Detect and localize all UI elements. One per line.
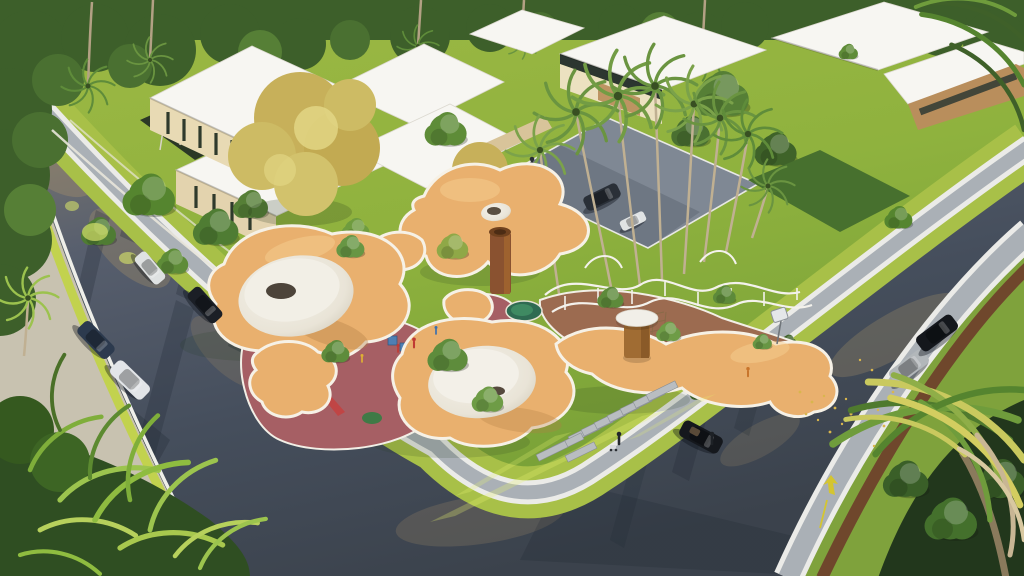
blue-play-cube [388,336,397,345]
aerial-playground-render [0,0,1024,576]
rendering-stage [0,0,1024,576]
sand-crater-pit [266,283,296,299]
canopy-hole-pit [487,207,501,215]
green-dome [362,412,382,424]
green-pool-water [511,304,533,316]
corten-tower [489,227,511,294]
